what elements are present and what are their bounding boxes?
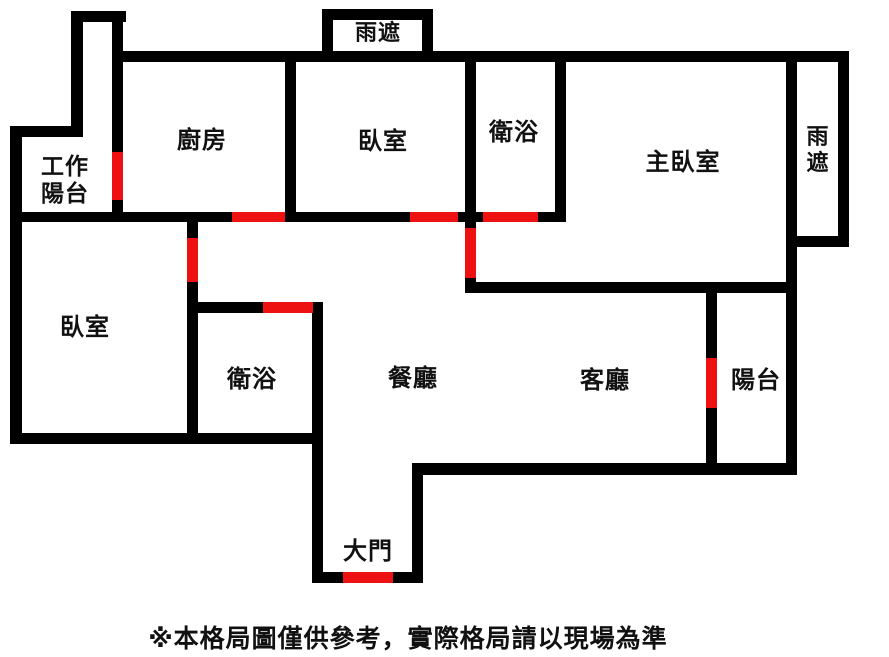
wall-kitchen-bedroom-divider	[285, 51, 296, 222]
door-bedroom-left	[187, 238, 198, 282]
door-bath-top	[483, 212, 538, 222]
room-label-work-balcony: 工作陽台	[41, 153, 89, 207]
door-entry	[343, 572, 393, 583]
wall-top-outer	[112, 51, 849, 62]
room-label-rain-shelter-top: 雨遮	[355, 20, 401, 46]
footer-note: ※本格局圖僅供參考，實際格局請以現場為準	[148, 619, 667, 655]
wall-rain-top-right	[422, 9, 433, 57]
room-label-dining-room: 餐廳	[388, 365, 438, 393]
room-label-rain-shelter-right: 雨遮	[806, 124, 829, 176]
wall-master-bottom	[465, 282, 797, 293]
wall-bedroom-bath-divider	[465, 51, 476, 222]
floor-plan: ※本格局圖僅供參考，實際格局請以現場為準 工作陽台廚房臥室衛浴主臥室雨遮雨遮臥室…	[0, 0, 889, 657]
door-balcony	[706, 358, 717, 408]
door-work-balcony	[112, 152, 123, 200]
wall-outer-left	[10, 126, 22, 444]
wall-bottom-left	[10, 433, 323, 444]
wall-rain-right-outer	[838, 51, 849, 247]
room-label-kitchen: 廚房	[177, 127, 227, 155]
wall-bottom-main	[412, 463, 797, 475]
door-bath-bottom	[263, 302, 313, 313]
room-label-living-room: 客廳	[580, 367, 630, 395]
room-label-master-bedroom: 主臥室	[646, 149, 721, 177]
wall-bath-master-divider	[555, 51, 566, 222]
room-label-bedroom-top: 臥室	[358, 128, 408, 156]
wall-rain-right-bottom	[786, 236, 849, 247]
wall-rain-top-cap	[322, 9, 433, 20]
room-label-bedroom-left: 臥室	[60, 314, 110, 342]
door-kitchen	[232, 212, 285, 222]
wall-work-balcony-left	[71, 11, 83, 137]
wall-entry-right	[412, 463, 423, 583]
door-bedroom-top	[410, 212, 458, 222]
door-master	[465, 228, 476, 278]
room-label-bathroom-top: 衛浴	[489, 119, 539, 147]
wall-outer-right	[786, 51, 797, 475]
room-label-main-door: 大門	[343, 538, 393, 566]
room-label-balcony: 陽台	[731, 367, 781, 395]
room-label-bathroom-bottom: 衛浴	[227, 366, 277, 394]
